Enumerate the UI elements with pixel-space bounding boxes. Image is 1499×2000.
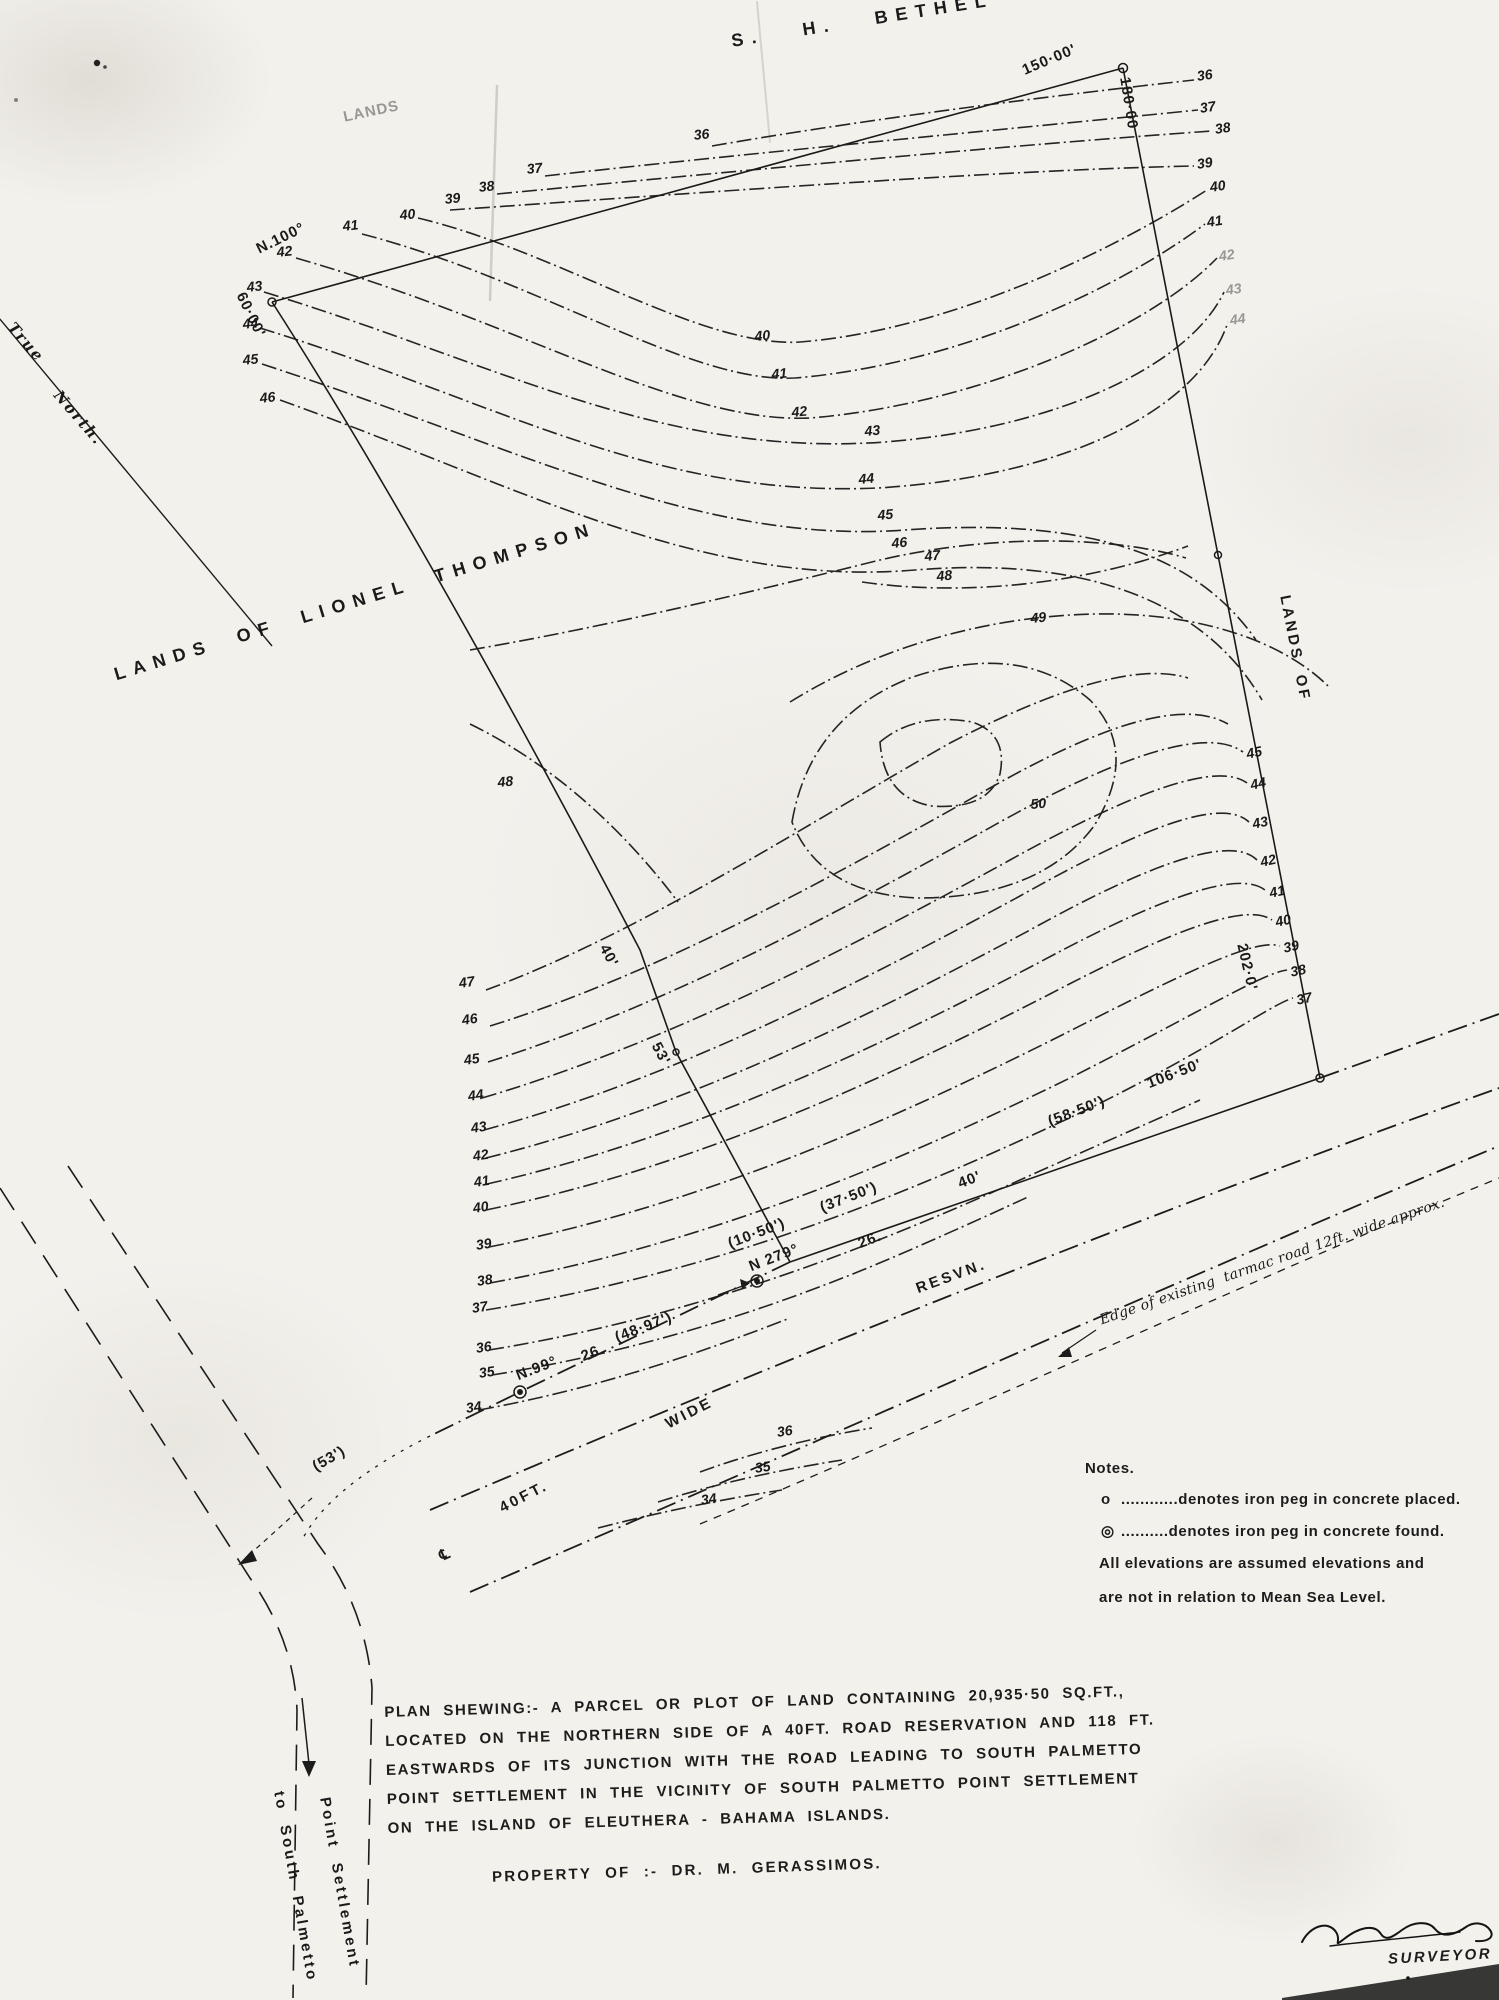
contour-label: 47 [458,974,475,990]
contour-label: 38 [1214,120,1231,136]
contour-line [497,131,1212,194]
plan-description: PLAN SHEWING:- A PARCEL OR PLOT OF LAND … [384,1676,1168,1843]
contour-label: 41 [1206,213,1223,229]
contour-label: 42 [472,1147,489,1163]
contour-label: 41 [1268,883,1286,900]
contour-label: 39 [444,190,461,206]
contour-line [260,322,1228,489]
contour-label: 46 [259,389,276,405]
contour-label: 40 [1274,912,1292,929]
contour-label: 34 [465,1399,482,1415]
contour-label: 42 [791,404,808,419]
iron-peg-found-symbol: ◎ [1101,1522,1121,1540]
contour-line [262,364,1256,640]
contour-label: 47 [924,548,941,563]
contour-label: 40 [472,1199,489,1215]
contour-line [792,663,1116,898]
contour-line [470,724,678,902]
contour-line [489,1100,1200,1350]
contour-label: 35 [478,1364,495,1380]
contour-label: 46 [461,1011,478,1027]
contour-line [470,541,1186,650]
contour-line [490,970,1287,1283]
contour-label: 41 [473,1173,490,1189]
legend-row: o ............denotes iron peg in concre… [1085,1491,1495,1508]
contour-label: 43 [864,423,881,438]
contour-label: 35 [754,1459,771,1475]
contour-label: 36 [776,1423,793,1439]
peg-markers [268,64,1324,1399]
contour-line [362,224,1205,378]
contour-label: 39 [1196,155,1213,171]
iron-peg-found-marker [751,1275,763,1287]
contour-label: 38 [476,1272,493,1288]
contour-label: 37 [1199,99,1216,115]
contour-label: 45 [242,351,259,367]
contour-label: 48 [936,568,953,583]
contour-label: 42 [1218,247,1235,263]
contour-label: 36 [1196,67,1213,83]
contour-label: 46 [891,535,908,550]
contour-line [545,110,1198,176]
survey-plan-sheet: S. H. BETHELLANDSLANDS OF LIONEL THOMPSO… [0,0,1499,2000]
contour-label: 39 [1282,938,1300,955]
contour-lines [260,80,1330,1528]
contour-label: 44 [858,471,875,486]
contour-label: 36 [475,1339,492,1355]
contour-line [486,674,1188,990]
contour-line [486,998,1293,1310]
contour-label: 42 [1259,852,1277,869]
contour-label: 49 [1030,610,1047,625]
contour-label: 44 [1249,775,1267,792]
notes-text: are not in relation to Mean Sea Level. [1099,1588,1495,1608]
contour-label: 44 [242,315,259,331]
contour-label: 42 [276,243,293,259]
contour-label: 45 [877,507,894,522]
contour-label: 45 [1245,744,1263,761]
iron-peg-found-marker [514,1386,526,1398]
legend-text: ............denotes iron peg in concrete… [1121,1491,1461,1508]
legend-text: ..........denotes iron peg in concrete f… [1121,1523,1445,1540]
notes-block: Notes. o ............denotes iron peg in… [1085,1460,1495,1609]
contour-label: 41 [771,366,788,381]
contour-label: 44 [467,1087,484,1103]
contour-label: 37 [526,160,543,176]
contour-line [490,714,1228,1026]
contour-label: 40 [1209,178,1226,194]
contour-label: 43 [470,1119,487,1135]
contour-label: 38 [478,178,495,194]
contour-label: 43 [1251,814,1269,831]
iron-peg-placed-symbol: o [1101,1491,1121,1508]
legend-row: ◎ ..........denotes iron peg in concrete… [1085,1522,1495,1540]
contour-line [418,190,1207,342]
contour-label: 43 [246,278,263,294]
north-arrow-line [0,312,272,646]
contour-label: 44 [1229,311,1246,327]
contour-line [880,720,1001,807]
contour-label: 48 [497,774,514,789]
contour-line [264,292,1224,444]
contour-label: 50 [1030,796,1047,811]
contour-label: 34 [700,1491,717,1507]
contour-line [790,614,1330,702]
contour-label: 39 [475,1236,492,1252]
contour-label: 40 [754,328,771,343]
contour-label: 38 [1289,962,1307,979]
contour-label: 45 [463,1051,480,1067]
contour-line [489,945,1280,1247]
contour-label: 37 [471,1299,488,1315]
contour-line [280,400,1262,700]
notes-title: Notes. [1085,1460,1495,1477]
contour-line [487,883,1266,1184]
contour-label: 36 [693,126,710,142]
contour-label: 37 [1295,990,1313,1007]
contour-line [486,851,1257,1158]
contour-label: 43 [1225,281,1242,297]
contour-label: 40 [399,206,416,222]
contour-label: 41 [342,217,359,233]
notes-text: All elevations are assumed elevations an… [1099,1554,1495,1574]
